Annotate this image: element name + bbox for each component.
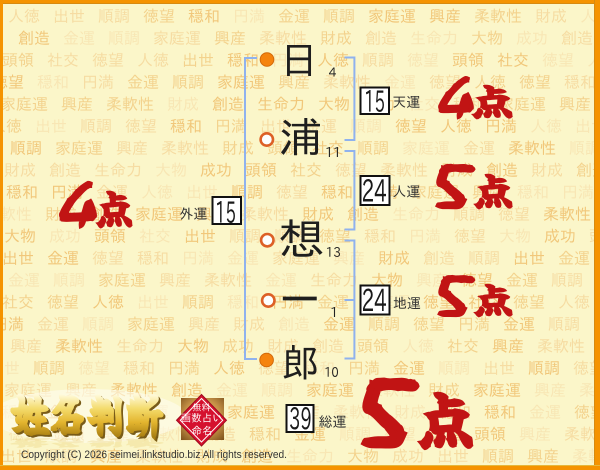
svg-text:Copyright (C) 2026 seimei.link: Copyright (C) 2026 seimei.linkstudio.biz…: [21, 449, 287, 461]
